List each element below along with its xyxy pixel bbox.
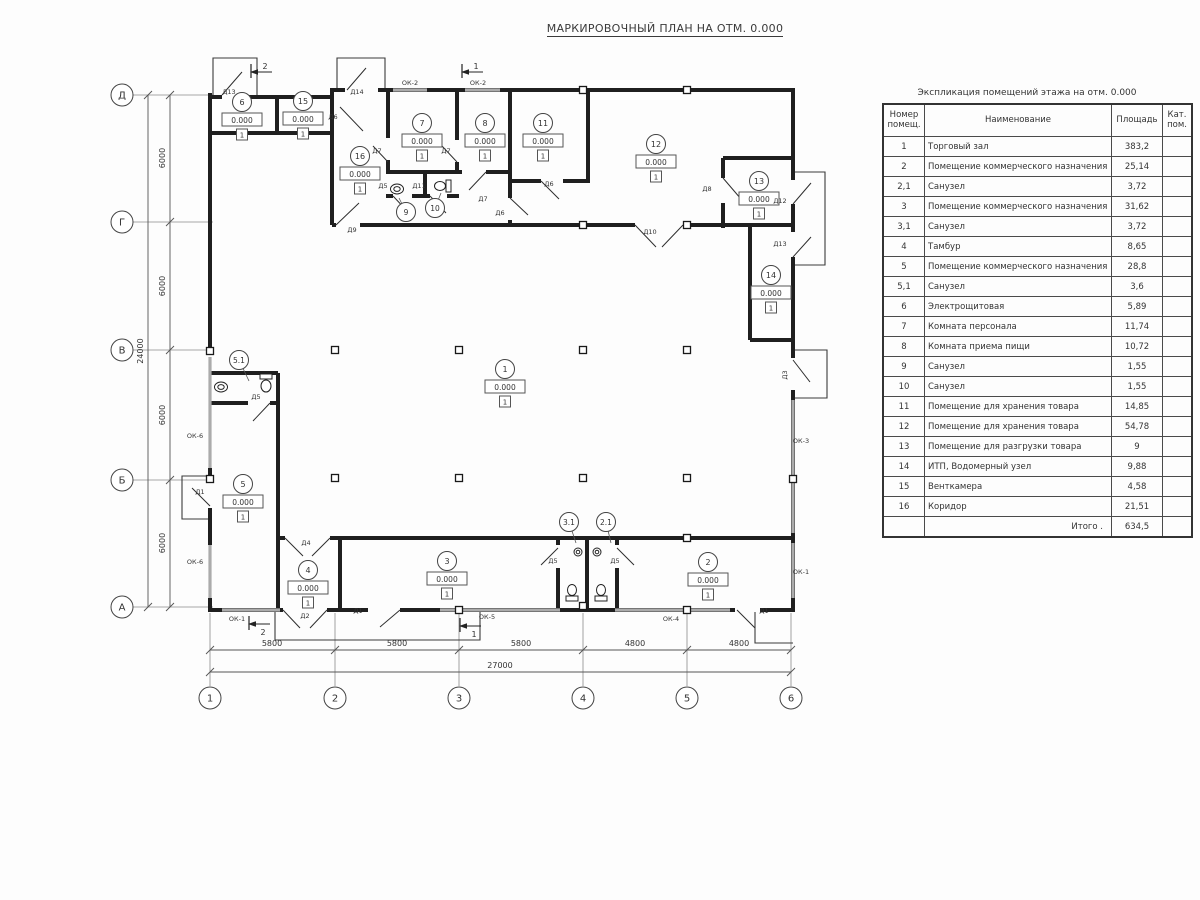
door-label: Д1	[759, 607, 768, 615]
table-total-row: Итого .634,5	[883, 517, 1192, 538]
table-cell: Тамбур	[925, 237, 1112, 257]
col-header-area: Площадь	[1112, 104, 1163, 137]
door-label: Д11	[412, 182, 425, 190]
window-label: ОК-3	[793, 437, 809, 445]
floor-mark: 1	[420, 153, 424, 161]
table-cell	[1163, 497, 1193, 517]
axis-label: 6	[788, 694, 794, 705]
room-number: 9	[404, 208, 409, 217]
floor-mark: 1	[358, 186, 362, 194]
table-cell	[1163, 437, 1193, 457]
table-cell: 3	[883, 197, 925, 217]
table-cell: 2	[883, 157, 925, 177]
floor-mark: 1	[706, 592, 710, 600]
door-label: Д1	[353, 607, 362, 615]
dim-label: 4800	[625, 639, 645, 648]
table-cell: 3,6	[1112, 277, 1163, 297]
table-cell: 28,8	[1112, 257, 1163, 277]
room-number: 16	[355, 152, 365, 161]
table-row: 16Коридор21,51	[883, 497, 1192, 517]
floor-mark: 1	[483, 153, 487, 161]
dim-label: 6000	[158, 405, 167, 425]
table-cell: 2,1	[883, 177, 925, 197]
table-cell: 5	[883, 257, 925, 277]
table-cell: 10	[883, 377, 925, 397]
window-label: ОК-5	[479, 613, 495, 621]
room-number: 2.1	[600, 518, 612, 527]
room-number: 1	[502, 365, 507, 374]
table-cell	[1163, 197, 1193, 217]
window-label: ОК-4	[663, 615, 679, 623]
window-label: ОК-1	[229, 615, 245, 623]
room-number: 13	[754, 177, 764, 186]
table-cell: Комната приема пищи	[925, 337, 1112, 357]
axis-label: 5	[684, 694, 690, 705]
table-cell: ИТП, Водомерный узел	[925, 457, 1112, 477]
window-label: ОК-6	[187, 432, 203, 440]
table-row: 13Помещение для разгрузки товара9	[883, 437, 1192, 457]
dim-label: 5800	[262, 639, 282, 648]
table-cell: Санузел	[925, 377, 1112, 397]
table-cell: 9,88	[1112, 457, 1163, 477]
elevation-value: 0.000	[349, 170, 371, 179]
axis-label: Г	[119, 218, 125, 229]
table-row: 4Тамбур8,65	[883, 237, 1192, 257]
elevation-value: 0.000	[474, 137, 496, 146]
table-row: 8Комната приема пищи10,72	[883, 337, 1192, 357]
floor-mark: 1	[654, 174, 658, 182]
door-label: Д5	[378, 182, 387, 190]
door-label: Д6	[495, 209, 504, 217]
dim-total-label: 27000	[487, 661, 512, 670]
table-cell: Коридор	[925, 497, 1112, 517]
window-bands	[210, 90, 793, 610]
dim-total-label: 24000	[136, 338, 145, 363]
dim-label: 5800	[387, 639, 407, 648]
door-label: Д7	[441, 147, 450, 155]
room-number: 10	[430, 204, 440, 213]
axis-label: Д	[118, 91, 126, 102]
axis-label: 1	[207, 694, 213, 705]
walls	[208, 88, 795, 612]
table-cell: 1,55	[1112, 357, 1163, 377]
room-number: 7	[419, 119, 424, 128]
floor-mark: 1	[757, 211, 761, 219]
room-number: 5	[240, 480, 245, 489]
room-number: 8	[482, 119, 487, 128]
section-mark-number: 2	[262, 62, 267, 71]
door-label: Д6	[544, 180, 553, 188]
room-schedule: Экспликация помещений этажа на отм. 0.00…	[882, 88, 1172, 538]
floor-mark: 1	[241, 514, 245, 522]
floor-mark: 1	[240, 132, 244, 140]
window-label: ОК-1	[793, 568, 809, 576]
table-cell	[1163, 357, 1193, 377]
elevation-value: 0.000	[760, 289, 782, 298]
room-number: 15	[298, 97, 308, 106]
door-label: Д13	[773, 240, 786, 248]
dim-label: 6000	[158, 148, 167, 168]
door-label: Д10	[643, 228, 656, 236]
table-cell: 13	[883, 437, 925, 457]
table-cell: 5,89	[1112, 297, 1163, 317]
table-cell	[1163, 257, 1193, 277]
table-cell: 1	[883, 137, 925, 157]
section-mark-number: 1	[473, 62, 478, 71]
room-schedule-table: Номерпомещ. Наименование Площадь Кат.пом…	[882, 103, 1193, 538]
table-cell: Помещение для хранения товара	[925, 417, 1112, 437]
table-cell: 14,85	[1112, 397, 1163, 417]
table-cell: 25,14	[1112, 157, 1163, 177]
axis-label: 4	[580, 694, 586, 705]
table-row: 2Помещение коммерческого назначения25,14	[883, 157, 1192, 177]
dim-label: 6000	[158, 276, 167, 296]
table-cell: 11	[883, 397, 925, 417]
table-cell	[1163, 457, 1193, 477]
table-cell: Санузел	[925, 217, 1112, 237]
door-label: Д13	[222, 88, 235, 96]
table-cell: 5,1	[883, 277, 925, 297]
floor-mark: 1	[769, 305, 773, 313]
drawing-sheet: МАРКИРОВОЧНЫЙ ПЛАН НА ОТМ. 0.000	[0, 0, 1200, 900]
room-number: 12	[651, 140, 661, 149]
table-cell	[1163, 337, 1193, 357]
table-row: 3Помещение коммерческого назначения31,62	[883, 197, 1192, 217]
dimension-lines	[144, 91, 795, 676]
table-row: 14ИТП, Водомерный узел9,88	[883, 457, 1192, 477]
elevation-value: 0.000	[645, 158, 667, 167]
door-label: Д8	[702, 185, 711, 193]
table-cell: 11,74	[1112, 317, 1163, 337]
table-cell: 10,72	[1112, 337, 1163, 357]
door-label: Д12	[773, 197, 786, 205]
table-row: 10Санузел1,55	[883, 377, 1192, 397]
table-cell: 8	[883, 337, 925, 357]
table-cell	[1163, 137, 1193, 157]
table-cell	[1163, 317, 1193, 337]
floor-mark: 1	[541, 153, 545, 161]
door-label: Д3	[781, 370, 789, 379]
table-row: 1Торговый зал383,2	[883, 137, 1192, 157]
table-cell: 9	[1112, 437, 1163, 457]
axis-label: 2	[332, 694, 338, 705]
axis-label: В	[119, 346, 126, 357]
col-header-name: Наименование	[925, 104, 1112, 137]
door-label: Д5	[251, 393, 260, 401]
col-header-category: Кат.пом.	[1163, 104, 1193, 137]
floor-mark: 1	[301, 131, 305, 139]
table-cell: 16	[883, 497, 925, 517]
room-number: 5.1	[233, 356, 245, 365]
dim-label: 4800	[729, 639, 749, 648]
door-label: Д2	[300, 612, 309, 620]
table-cell	[1163, 377, 1193, 397]
table-row: 5,1Санузел3,6	[883, 277, 1192, 297]
table-row: 12Помещение для хранения товара54,78	[883, 417, 1192, 437]
table-cell: 383,2	[1112, 137, 1163, 157]
door-label: Д4	[301, 539, 310, 547]
door-label: Д7	[478, 195, 487, 203]
table-cell	[1163, 417, 1193, 437]
table-cell: Электрощитовая	[925, 297, 1112, 317]
window-label: ОК-2	[470, 79, 486, 87]
door-label: Д7	[372, 147, 381, 155]
elevation-value: 0.000	[232, 498, 254, 507]
table-cell: Торговый зал	[925, 137, 1112, 157]
table-cell: Санузел	[925, 177, 1112, 197]
room-number: 3.1	[563, 518, 575, 527]
table-cell: 6	[883, 297, 925, 317]
elevation-value: 0.000	[297, 584, 319, 593]
door-label: Д1	[195, 488, 204, 496]
room-number: 11	[538, 119, 548, 128]
table-cell: Венткамера	[925, 477, 1112, 497]
table-cell: Помещение для хранения товара	[925, 397, 1112, 417]
room-number: 4	[305, 566, 310, 575]
elevation-value: 0.000	[436, 575, 458, 584]
table-cell: Помещение коммерческого назначения	[925, 197, 1112, 217]
columns	[207, 87, 797, 614]
table-cell	[1163, 397, 1193, 417]
table-cell: Помещение коммерческого назначения	[925, 257, 1112, 277]
dim-label: 5800	[511, 639, 531, 648]
table-row: 11Помещение для хранения товара14,85	[883, 397, 1192, 417]
window-label: ОК-2	[402, 79, 418, 87]
table-cell: 3,72	[1112, 177, 1163, 197]
table-cell: 15	[883, 477, 925, 497]
section-mark-number: 2	[260, 628, 265, 637]
room-number: 2	[705, 558, 710, 567]
table-cell: 1,55	[1112, 377, 1163, 397]
table-row: 7Комната персонала11,74	[883, 317, 1192, 337]
room-number: 6	[239, 98, 244, 107]
elevation-value: 0.000	[697, 576, 719, 585]
table-cell: 54,78	[1112, 417, 1163, 437]
axis-label: А	[119, 603, 126, 614]
axis-label: 3	[456, 694, 462, 705]
table-row: 15Венткамера4,58	[883, 477, 1192, 497]
room-number: 3	[444, 557, 449, 566]
table-cell: Санузел	[925, 357, 1112, 377]
table-cell: 4,58	[1112, 477, 1163, 497]
elevation-value: 0.000	[748, 195, 770, 204]
elevation-value: 0.000	[292, 115, 314, 124]
floor-mark: 1	[503, 399, 507, 407]
elevation-value: 0.000	[411, 137, 433, 146]
table-row: 6Электрощитовая5,89	[883, 297, 1192, 317]
floor-mark: 1	[445, 591, 449, 599]
elevation-value: 0.000	[532, 137, 554, 146]
dim-label: 6000	[158, 533, 167, 553]
table-cell: Комната персонала	[925, 317, 1112, 337]
table-cell: 3,72	[1112, 217, 1163, 237]
table-cell: 8,65	[1112, 237, 1163, 257]
table-cell: 14	[883, 457, 925, 477]
room-number: 14	[766, 271, 776, 280]
table-row: 3,1Санузел3,72	[883, 217, 1192, 237]
axis-extension-lines	[133, 95, 791, 686]
table-cell	[1163, 177, 1193, 197]
door-label: Д5	[610, 557, 619, 565]
table-cell: 4	[883, 237, 925, 257]
table-cell: 7	[883, 317, 925, 337]
elevation-value: 0.000	[494, 383, 516, 392]
table-cell	[1163, 237, 1193, 257]
room-schedule-title: Экспликация помещений этажа на отм. 0.00…	[882, 88, 1172, 98]
elevation-value: 0.000	[231, 116, 253, 125]
door-label: Д14	[350, 88, 363, 96]
window-label: ОК-6	[187, 558, 203, 566]
table-cell	[1163, 157, 1193, 177]
door-leaves	[192, 68, 811, 628]
table-cell	[1163, 277, 1193, 297]
table-cell	[1163, 297, 1193, 317]
axis-label: Б	[119, 476, 126, 487]
door-label: Д6	[328, 113, 337, 121]
table-cell: Помещение для разгрузки товара	[925, 437, 1112, 457]
table-cell: Помещение коммерческого назначения	[925, 157, 1112, 177]
table-cell: 9	[883, 357, 925, 377]
col-header-number: Номерпомещ.	[883, 104, 925, 137]
table-row: 5Помещение коммерческого назначения28,8	[883, 257, 1192, 277]
table-cell	[1163, 217, 1193, 237]
table-cell: 12	[883, 417, 925, 437]
table-cell: 31,62	[1112, 197, 1163, 217]
table-cell: Санузел	[925, 277, 1112, 297]
table-cell: 21,51	[1112, 497, 1163, 517]
table-cell: 3,1	[883, 217, 925, 237]
floor-mark: 1	[306, 600, 310, 608]
table-row: 2,1Санузел3,72	[883, 177, 1192, 197]
door-label: Д9	[347, 226, 356, 234]
section-mark-number: 1	[471, 630, 476, 639]
door-label: Д5	[548, 557, 557, 565]
table-cell	[1163, 477, 1193, 497]
table-row: 9Санузел1,55	[883, 357, 1192, 377]
